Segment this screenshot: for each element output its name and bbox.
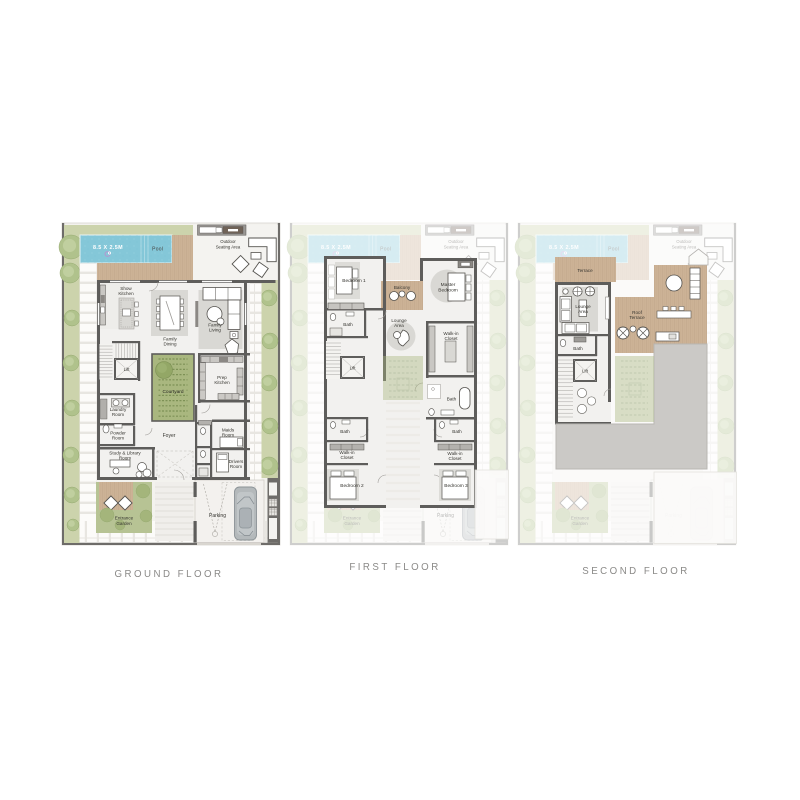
svg-text:Lift: Lift [124,367,131,372]
svg-text:Parking: Parking [209,513,226,519]
svg-text:8.5 X 2.5M: 8.5 X 2.5M [93,245,123,251]
svg-text:Courtyard: Courtyard [162,389,183,395]
svg-text:Outdoor: Outdoor [220,239,236,244]
svg-text:Garden: Garden [572,521,588,526]
svg-text:Area: Area [578,309,588,314]
svg-text:Bedroom: Bedroom [438,287,457,293]
svg-text:Dining: Dining [163,342,176,347]
svg-text:Entrance: Entrance [115,516,134,521]
svg-text:Entrance: Entrance [571,516,590,521]
svg-text:Room: Room [112,436,124,441]
svg-text:Pool: Pool [608,246,619,252]
svg-text:Bedroom 2: Bedroom 2 [340,483,364,489]
svg-text:Pool: Pool [152,246,163,252]
svg-text:Master: Master [441,282,456,288]
svg-text:8.5 X 2.5M: 8.5 X 2.5M [549,245,579,251]
svg-text:Room: Room [112,412,124,417]
svg-text:Seating Area: Seating Area [672,244,697,249]
svg-text:Kitchen: Kitchen [118,291,134,296]
svg-text:Entrance: Entrance [343,516,362,521]
svg-text:Living: Living [209,327,221,332]
svg-text:Seating Area: Seating Area [216,244,241,249]
svg-text:Garden: Garden [116,521,132,526]
svg-text:Outdoor: Outdoor [448,239,464,244]
svg-text:Bath: Bath [343,322,353,327]
svg-text:Room: Room [222,433,234,438]
svg-text:Seating Area: Seating Area [444,244,469,249]
svg-text:Room: Room [119,456,131,461]
svg-text:Garden: Garden [344,521,360,526]
svg-text:SECOND FLOOR: SECOND FLOOR [582,566,690,577]
svg-text:Bath: Bath [452,429,462,434]
svg-text:FIRST FLOOR: FIRST FLOOR [349,562,440,573]
svg-text:Closet: Closet [444,336,458,341]
svg-text:Area: Area [394,323,404,328]
svg-text:Bedroom 1: Bedroom 1 [342,278,366,284]
svg-text:Lift: Lift [350,366,357,371]
svg-text:Closet: Closet [448,456,462,461]
svg-text:Bath: Bath [447,397,457,402]
svg-text:8.5 X 2.5M: 8.5 X 2.5M [321,245,351,251]
svg-text:Bath: Bath [340,429,350,434]
svg-text:Lift: Lift [582,369,589,374]
svg-text:Closet: Closet [340,455,354,460]
svg-text:Bath: Bath [573,346,583,351]
svg-text:Balcony: Balcony [394,285,411,290]
svg-text:Outdoor: Outdoor [676,239,692,244]
svg-text:Parking: Parking [437,513,454,519]
svg-text:Kitchen: Kitchen [214,380,230,385]
svg-text:Terrace: Terrace [629,315,645,320]
svg-text:Bedroom 3: Bedroom 3 [444,483,468,489]
svg-text:Terrace: Terrace [577,268,593,273]
svg-text:Foyer: Foyer [163,433,176,439]
svg-text:Room: Room [230,464,242,469]
svg-text:Pool: Pool [380,246,391,252]
svg-text:GROUND FLOOR: GROUND FLOOR [114,569,223,580]
